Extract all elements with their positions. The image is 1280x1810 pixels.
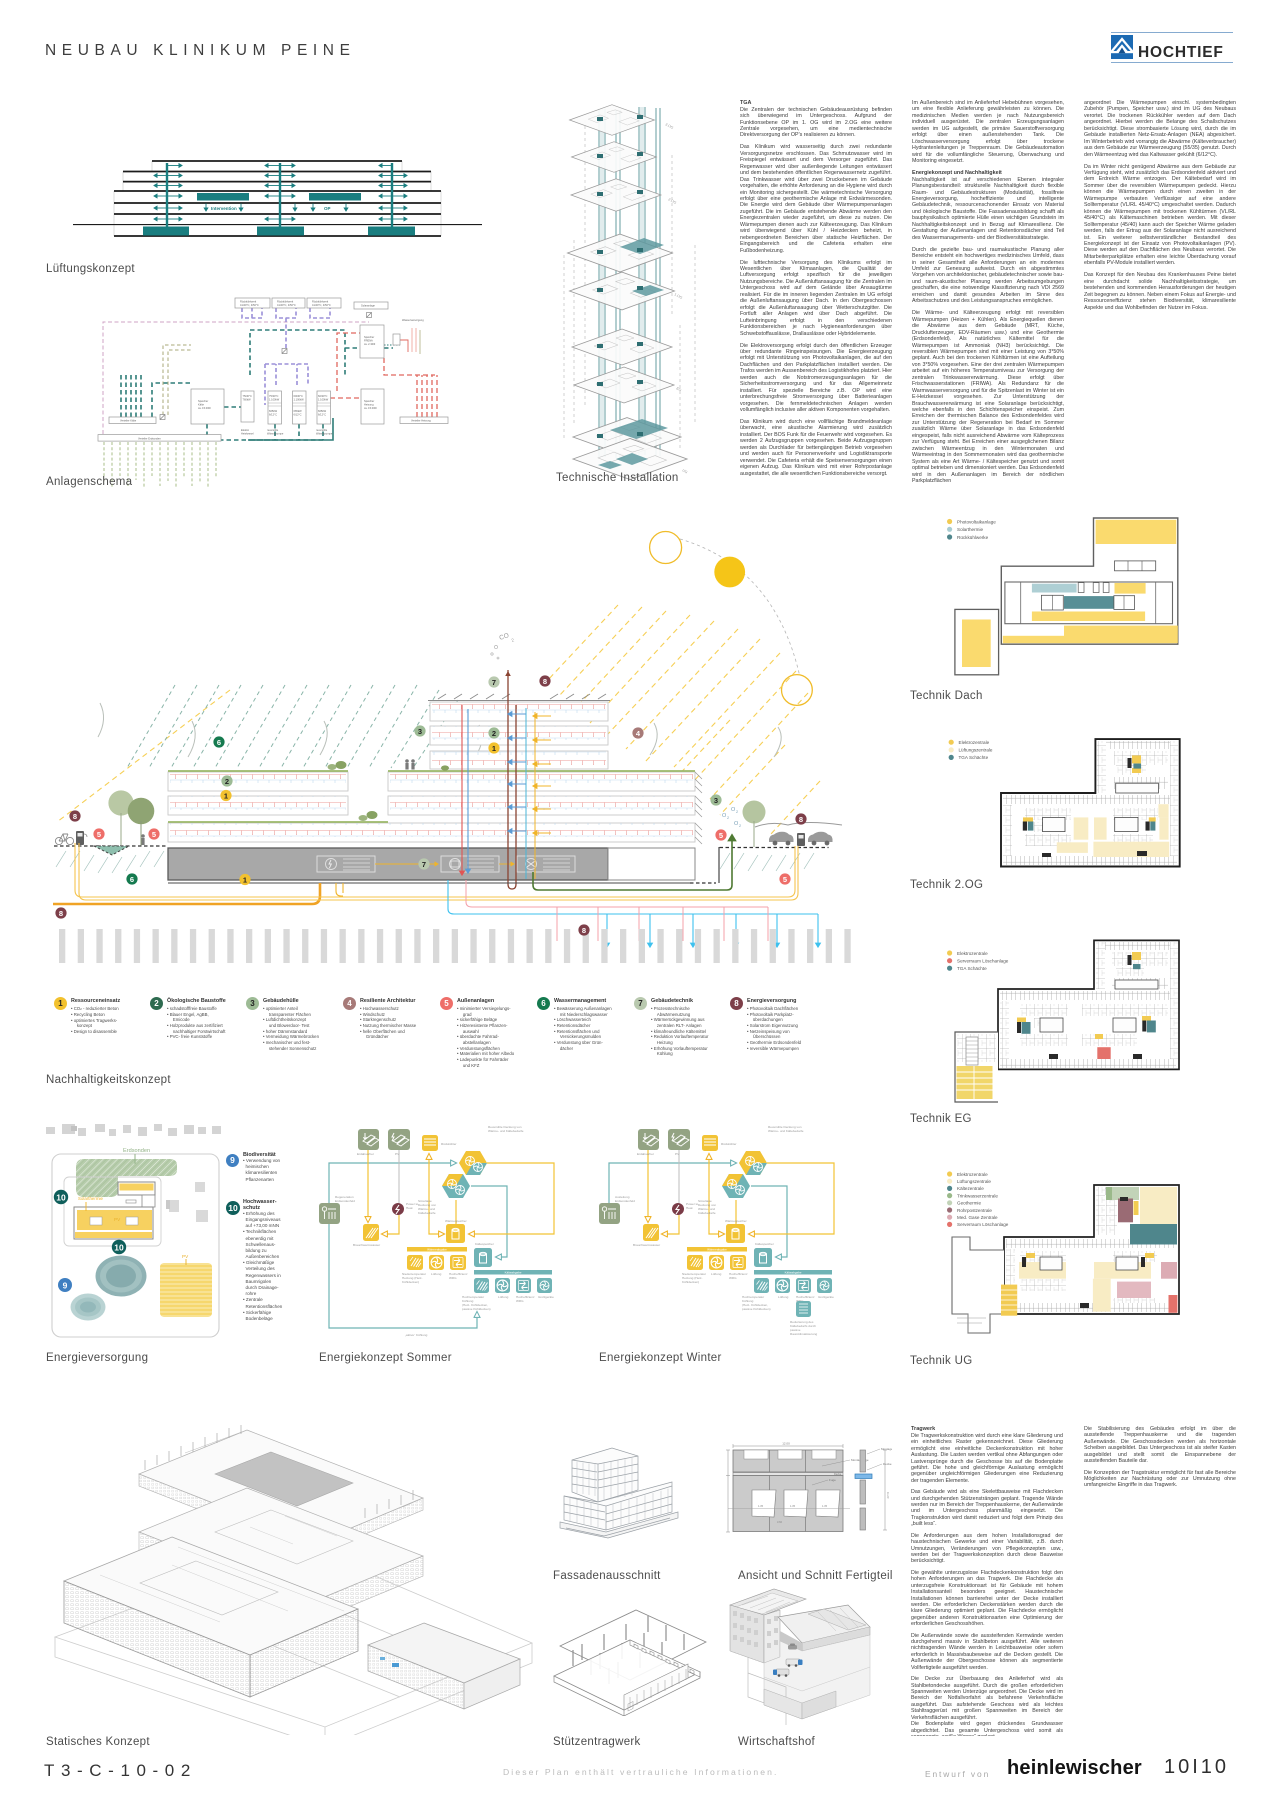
svg-text:Kältebedarfe: Kältebedarfe [698, 1211, 716, 1215]
svg-text:passive Kühldecken): passive Kühldecken) [462, 1307, 491, 1311]
svg-text:5: 5 [97, 830, 101, 839]
svg-text:75/30°C: 75/30°C [243, 394, 253, 398]
svg-text:ca. 15.000l: ca. 15.000l [198, 406, 211, 410]
svg-text:Lüftung: Lüftung [498, 1295, 509, 1299]
svg-text:Geothermie: Geothermie [957, 1201, 981, 1206]
svg-text:ca. 2.300l: ca. 2.300l [364, 342, 376, 346]
svg-text:Kühldecken): Kühldecken) [402, 1280, 419, 1284]
svg-text:Kältezentrale: Kältezentrale [957, 1186, 984, 1191]
svg-text:41/40°C, 4/50°C: 41/40°C, 4/50°C [277, 303, 296, 307]
svg-text:Lüftung: Lüftung [431, 1272, 442, 1276]
svg-text:Wärmespeicher: Wärmespeicher [725, 1219, 747, 1223]
svg-text:Rückkühler: Rückkühler [721, 1142, 736, 1146]
svg-text:3: 3 [418, 727, 422, 736]
svg-text:6: 6 [130, 875, 134, 884]
svg-text:Heat: Heat [406, 1206, 413, 1210]
svg-text:HOCHTIEF: HOCHTIEF [1138, 44, 1224, 61]
svg-text:3.OG: 3.OG [665, 122, 675, 130]
svg-text:5: 5 [152, 830, 156, 839]
svg-text:7: 7 [492, 678, 496, 687]
svg-text:2: 2 [225, 777, 229, 786]
svg-text:6: 6 [217, 738, 221, 747]
svg-text:11.20: 11.20 [886, 1492, 890, 1499]
svg-text:2: 2 [727, 816, 729, 820]
svg-text:5: 5 [719, 831, 723, 840]
svg-text:665kW: 665kW [269, 409, 278, 413]
svg-text:2.OG: 2.OG [668, 197, 678, 205]
svg-text:9: 9 [63, 1280, 68, 1290]
svg-text:3.60: 3.60 [777, 1520, 783, 1524]
svg-text:6/12°C: 6/12°C [318, 413, 326, 417]
svg-text:Photovoltaikanlage: Photovoltaikanlage [957, 519, 996, 524]
svg-text:1.100kW: 1.100kW [318, 398, 329, 402]
svg-text:1.35: 1.35 [822, 1504, 828, 1508]
svg-text:Lüftung: Lüftung [778, 1295, 789, 1299]
svg-text:Speicher: Speicher [198, 399, 208, 403]
svg-text:6/12°C: 6/12°C [294, 413, 302, 417]
svg-text:Kälte: Kälte [198, 403, 204, 407]
svg-text:1.35: 1.35 [790, 1504, 796, 1508]
svg-text:Wärme- und Kältebedarfe: Wärme- und Kältebedarfe [488, 1129, 524, 1133]
svg-text:TGA Schächte: TGA Schächte [957, 966, 987, 971]
svg-text:WRG: WRG [449, 1276, 457, 1280]
svg-text:Rückkühlwerke: Rückkühlwerke [957, 535, 989, 540]
svg-text:Brauchwarmwasser: Brauchwarmwasser [353, 1243, 380, 1247]
svg-text:Solarthermie: Solarthermie [957, 527, 983, 532]
svg-text:2: 2 [736, 810, 738, 814]
svg-text:10: 10 [56, 1192, 66, 1202]
svg-text:Großgeräte: Großgeräte [538, 1295, 554, 1299]
svg-text:Wärmespeicher: Wärmespeicher [445, 1219, 467, 1223]
svg-text:Erdabsorber: Erdabsorber [637, 1152, 654, 1156]
svg-text:1.100kW: 1.100kW [269, 398, 280, 402]
svg-text:ca. 15.000l: ca. 15.000l [364, 406, 377, 410]
svg-text:Erdsondenfeld: Erdsondenfeld [615, 1199, 635, 1203]
svg-text:Heizung: Heizung [364, 403, 374, 407]
svg-text:41/40°C, 4/50°C: 41/40°C, 4/50°C [312, 303, 331, 307]
svg-text:8: 8 [799, 815, 803, 824]
svg-text:Großgeräte: Großgeräte [818, 1295, 834, 1299]
svg-text:8: 8 [543, 677, 547, 686]
svg-text:60/30°C: 60/30°C [294, 394, 304, 398]
svg-text:PV: PV [114, 1217, 121, 1222]
svg-text:EG: EG [676, 386, 683, 392]
svg-text:12.00: 12.00 [782, 1442, 790, 1446]
svg-text:Elektrozentrale: Elektrozentrale [957, 1172, 988, 1177]
svg-text:Fuge: Fuge [829, 1478, 836, 1482]
svg-text:Verteiler Erdsonden: Verteiler Erdsonden [138, 436, 161, 440]
svg-text:Serverraum Löschanlage: Serverraum Löschanlage [957, 959, 1009, 964]
svg-text:Raumklimatisierung: Raumklimatisierung [790, 1332, 817, 1336]
svg-text:Verteiler Heizung: Verteiler Heizung [411, 419, 431, 423]
svg-text:WRG: WRG [729, 1276, 737, 1280]
svg-text:Solarthermie: Solarthermie [78, 1196, 103, 1201]
svg-text:Elektrozentrale: Elektrozentrale [957, 951, 988, 956]
svg-text:Brauchwarmwasser: Brauchwarmwasser [633, 1243, 660, 1247]
svg-text:Rohrpostzentrale: Rohrpostzentrale [957, 1208, 992, 1213]
svg-text:Lüftungszentrale: Lüftungszentrale [959, 748, 993, 753]
svg-text:passive Kühldecken): passive Kühldecken) [742, 1307, 771, 1311]
svg-text:10: 10 [114, 1242, 124, 1252]
svg-text:PV: PV [182, 1254, 189, 1259]
svg-text:„aktive“ Kühlung: „aktive“ Kühlung [405, 1333, 428, 1337]
svg-text:Heizkessel: Heizkessel [241, 431, 254, 435]
svg-text:7: 7 [422, 860, 426, 869]
svg-text:Decke: Decke [883, 1462, 892, 1466]
svg-text:60/30°C: 60/30°C [318, 394, 328, 398]
svg-text:2: 2 [739, 824, 741, 828]
svg-text:1: 1 [243, 875, 247, 884]
svg-text:75/30°C: 75/30°C [269, 394, 279, 398]
svg-text:Lüftungszentrale: Lüftungszentrale [957, 1179, 991, 1184]
svg-text:665kW: 665kW [318, 409, 327, 413]
svg-text:Trinkwasserzentrale: Trinkwasserzentrale [957, 1193, 998, 1198]
svg-text:3: 3 [714, 796, 718, 805]
svg-text:2: 2 [492, 729, 496, 738]
svg-text:41/40°C, 4/50°C: 41/40°C, 4/50°C [240, 303, 259, 307]
svg-text:Serverraum Löschanlage: Serverraum Löschanlage [957, 1222, 1009, 1227]
svg-text:Intervention: Intervention [211, 206, 237, 211]
svg-text:Wasserversorgung: Wasserversorgung [402, 318, 424, 322]
svg-text:8: 8 [582, 926, 586, 935]
svg-text:760kW: 760kW [243, 398, 252, 402]
svg-text:Wärmeabgabe: Wärmeabgabe [707, 1248, 727, 1252]
svg-text:Med. Gase Zentrale: Med. Gase Zentrale [957, 1215, 998, 1220]
svg-text:5: 5 [783, 875, 787, 884]
svg-text:1.OG: 1.OG [674, 292, 684, 300]
svg-text:Rückkühler: Rückkühler [441, 1142, 456, 1146]
svg-text:Wärmepumpe: Wärmepumpe [316, 431, 333, 435]
svg-text:TGA Schächte: TGA Schächte [959, 755, 989, 760]
svg-text:Kältespeicher: Kältespeicher [475, 1242, 494, 1246]
svg-text:Kältebedarfe: Kältebedarfe [418, 1211, 436, 1215]
svg-text:Lüftung: Lüftung [711, 1272, 722, 1276]
svg-text:Kälteabgabe: Kälteabgabe [785, 1271, 802, 1275]
svg-text:Erdsonden: Erdsonden [123, 1148, 150, 1154]
svg-text:1.35: 1.35 [758, 1504, 764, 1508]
svg-text:Kälteabgabe: Kälteabgabe [505, 1271, 522, 1275]
svg-text:UG: UG [682, 468, 689, 474]
svg-text:FRENA: FRENA [364, 339, 373, 343]
svg-text:Erdabsorber: Erdabsorber [357, 1152, 374, 1156]
svg-text:Speicher: Speicher [364, 399, 374, 403]
svg-text:Heat: Heat [686, 1206, 693, 1210]
svg-text:Solaranlage: Solaranlage [361, 304, 375, 308]
svg-text:Montagefuge: Montagefuge [881, 1447, 892, 1451]
svg-text:WRG: WRG [516, 1299, 524, 1303]
svg-text:8: 8 [59, 909, 63, 918]
svg-text:665kW: 665kW [294, 409, 303, 413]
svg-text:2: 2 [511, 637, 515, 643]
svg-text:Elektrozentrale: Elektrozentrale [959, 740, 990, 745]
svg-text:Wärmeabgabe: Wärmeabgabe [427, 1248, 447, 1252]
svg-text:OP: OP [324, 206, 331, 211]
svg-text:CO: CO [498, 632, 509, 642]
svg-text:Kältespeicher: Kältespeicher [755, 1242, 774, 1246]
svg-text:Kühldecken): Kühldecken) [682, 1280, 699, 1284]
svg-text:Erdsondenfeld: Erdsondenfeld [335, 1199, 355, 1203]
svg-text:8: 8 [73, 812, 77, 821]
svg-text:1: 1 [492, 744, 496, 753]
svg-text:Wärmepumpe: Wärmepumpe [267, 431, 284, 435]
svg-text:Verteiler Kälte: Verteiler Kälte [120, 419, 137, 423]
svg-text:6/12°C: 6/12°C [269, 413, 277, 417]
svg-text:1.100kW: 1.100kW [294, 398, 305, 402]
svg-text:Wärme- und Kältebedarfe: Wärme- und Kältebedarfe [768, 1129, 804, 1133]
svg-text:1: 1 [224, 791, 228, 800]
svg-text:Speicher: Speicher [364, 335, 374, 339]
